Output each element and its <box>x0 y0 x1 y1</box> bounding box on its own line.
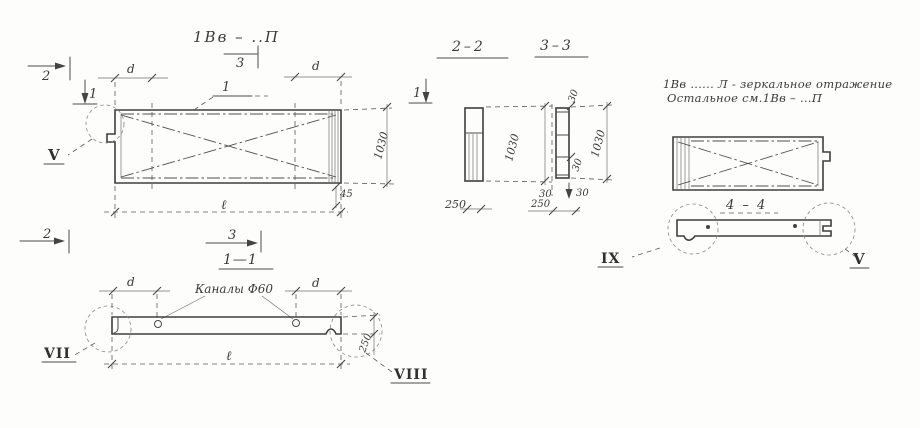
dim-length-s11: ℓ <box>104 337 350 370</box>
technical-drawing: 1Вв – ..П 3 2 1 <box>0 0 920 428</box>
section-2-2: 2–2 1 1030 250 <box>409 39 552 213</box>
channel-hole-left <box>155 321 162 328</box>
dim-30-bottom-s33: 30 30 <box>539 183 589 200</box>
section-4-4-body <box>677 220 831 240</box>
dim-30-mid-label: 30 <box>570 157 585 173</box>
dim-30-top-label: 30 <box>566 88 581 104</box>
section-3-3-body <box>556 108 569 178</box>
channel-hole-right <box>293 320 300 327</box>
channels-callout: Каналы Ф60 <box>161 282 293 319</box>
mirror-note-line1: 1Вв ...... Л - зеркальное отражение <box>663 77 892 91</box>
item-callout-1: 1 <box>191 80 268 112</box>
mirror-note-line2: Остальное см.1Вв – ...П <box>667 91 823 105</box>
dim-length-main-label: ℓ <box>221 198 227 213</box>
section-2-2-body <box>465 108 483 181</box>
mark-1-label: 1 <box>89 87 97 102</box>
mark-2-label: 2 <box>41 69 50 84</box>
dim-250-s33-label: 250 <box>530 199 551 210</box>
main-view-title: 1Вв – ..П <box>193 28 280 46</box>
mirror-end-hatch <box>677 138 689 189</box>
section-1-1: 1—1 Каналы Ф60 d d <box>42 252 430 383</box>
section-1-1-body <box>112 317 341 334</box>
channel-hole-dot-left <box>706 225 710 229</box>
dim-1030-s33-label: 1030 <box>588 128 608 158</box>
dim-length-s11-label: ℓ <box>226 349 232 364</box>
dim-d-right-s11: d <box>285 276 352 295</box>
dim-d-right-label: d <box>312 59 320 73</box>
dim-d-right-s11-label: d <box>312 276 320 290</box>
dim-d-left: d <box>98 62 168 82</box>
detail-viii-label: VIII <box>393 367 429 383</box>
section-1-1-title: 1—1 <box>223 252 258 268</box>
dim-250-s11: 250 <box>343 312 380 355</box>
dim-1030-main-label: 1030 <box>371 130 391 160</box>
section-4-4: 4 – 4 IX V <box>598 198 869 268</box>
dim-45-label: 45 <box>339 189 353 200</box>
mirror-plan-view <box>673 137 830 190</box>
dim-250-s11-label: 250 <box>357 332 374 355</box>
dim-length-main: ℓ <box>104 198 348 216</box>
dim-d-left-s11: d <box>99 275 170 295</box>
panel-end-hatch <box>329 111 338 182</box>
section-mark-3-top: 3 <box>224 46 258 71</box>
mirror-note: 1Вв ...... Л - зеркальное отражение Оста… <box>663 77 892 105</box>
section-2-2-title: 2–2 <box>451 39 486 55</box>
dim-45: 45 <box>332 183 353 210</box>
main-plan-view: 1Вв – ..П 3 2 1 <box>20 28 394 253</box>
dim-1030-s22-label: 1030 <box>502 132 522 162</box>
drawing-sheet: 1Вв – ..П 3 2 1 <box>0 0 920 428</box>
dim-250-s22: 250 <box>444 198 492 213</box>
mark-1-s22-label: 1 <box>413 86 421 101</box>
section-mark-1-top: 1 <box>73 80 97 104</box>
section-3-3-title: 3–3 <box>540 38 574 54</box>
section-4-4-title: 4 – 4 <box>725 198 767 213</box>
mirror-panel-outline <box>673 137 830 190</box>
left-keyway <box>114 318 118 333</box>
section-mark-1-s22: 1 <box>409 79 432 103</box>
item-callout-label: 1 <box>222 80 230 95</box>
detail-ix-label: IX <box>601 251 620 267</box>
detail-v-label: V <box>47 146 61 164</box>
dim-1030-s22: 1030 <box>486 102 552 185</box>
section-3-3: 3–3 30 1030 30 30 30 <box>528 38 614 215</box>
channel-hole-dot-right <box>793 224 797 228</box>
dim-1030-main: 1030 <box>344 103 394 188</box>
section-mark-3-bottom: 3 <box>206 228 261 252</box>
mark-3-label: 3 <box>236 56 244 71</box>
detail-vii-label: VII <box>43 346 71 362</box>
dim-d-left-s11-label: d <box>127 275 135 289</box>
channels-label: Каналы Ф60 <box>194 282 273 296</box>
dim-d-right: d <box>284 59 352 81</box>
section-mark-2-bottom: 2 <box>20 227 69 253</box>
dim-d-left-label: d <box>127 62 135 76</box>
section-mark-2-top: 2 <box>28 57 70 84</box>
detail-v-44-label: V <box>852 250 866 268</box>
dim-250-s33: 250 <box>528 199 580 215</box>
mark-2-bottom-label: 2 <box>42 227 51 242</box>
mark-3-bottom-label: 3 <box>228 228 236 243</box>
dim-30-br-label: 30 <box>576 188 589 199</box>
